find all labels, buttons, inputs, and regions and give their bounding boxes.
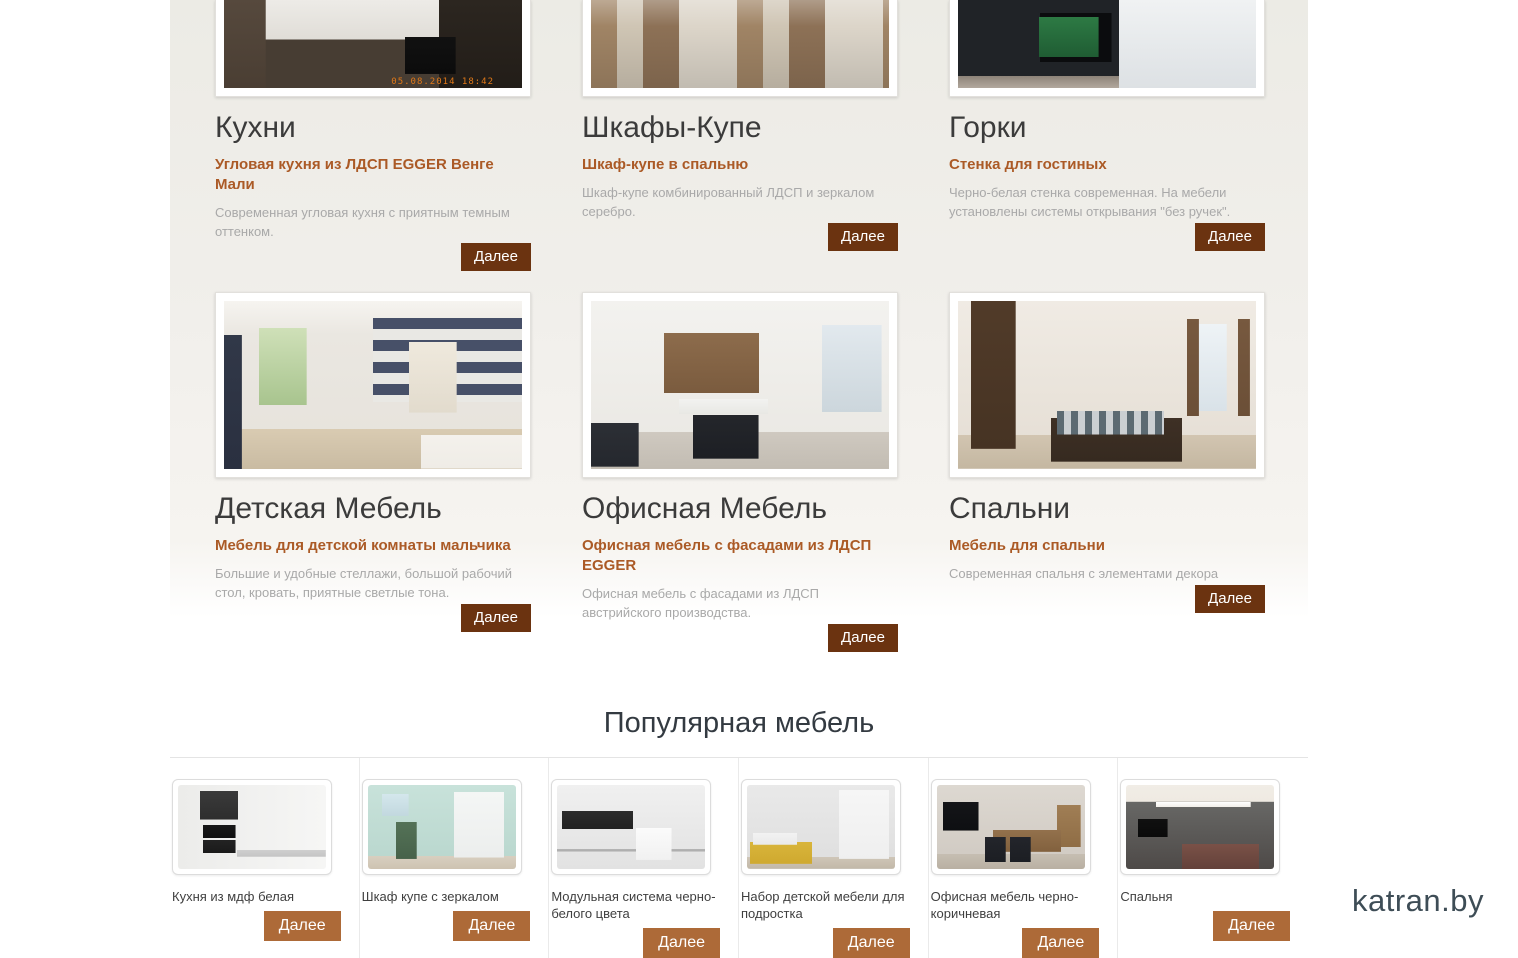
- bedroom-photo: [958, 301, 1256, 469]
- more-button[interactable]: Далее: [828, 223, 898, 251]
- more-button[interactable]: Далее: [828, 624, 898, 652]
- button-row: Далее: [949, 223, 1265, 251]
- category-card-kids-furniture: Детская Мебель Мебель для детской комнат…: [215, 292, 531, 652]
- category-title: Горки: [949, 110, 1265, 146]
- more-button[interactable]: Далее: [264, 911, 341, 941]
- site-logo: katran.by: [1352, 882, 1484, 920]
- popular-card-mirror-wardrobe: Шкаф купе с зеркалом Далее: [360, 758, 550, 958]
- kids-room-photo: [224, 301, 522, 469]
- more-button[interactable]: Далее: [461, 243, 531, 271]
- category-subtitle-link[interactable]: Шкаф-купе в спальню: [582, 155, 898, 175]
- category-description: Шкаф-купе комбинированный ЛДСП и зеркало…: [582, 183, 884, 221]
- popular-card-teen-furniture: Набор детской мебели для подростка Далее: [739, 758, 929, 958]
- popular-caption: Спальня: [1120, 888, 1292, 905]
- category-subtitle-link[interactable]: Мебель для спальни: [949, 536, 1265, 556]
- wardrobe-photo: [591, 0, 889, 88]
- popular-heading: Популярная мебель: [170, 706, 1308, 740]
- category-card-office-furniture: Офисная Мебель Офисная мебель с фасадами…: [582, 292, 898, 652]
- category-description: Офисная мебель с фасадами из ЛДСП австри…: [582, 584, 884, 622]
- popular-photo-office-dark[interactable]: [931, 779, 1091, 875]
- category-description: Современная угловая кухня с приятным тем…: [215, 203, 517, 241]
- more-button[interactable]: Далее: [643, 928, 720, 958]
- category-photo-wall-units[interactable]: [949, 0, 1265, 97]
- category-title: Офисная Мебель: [582, 491, 898, 527]
- category-photo-office[interactable]: [582, 292, 898, 478]
- bedroom-thumb: [1126, 785, 1274, 869]
- category-title: Шкафы-Купе: [582, 110, 898, 146]
- popular-caption: Кухня из мдф белая: [172, 888, 343, 905]
- category-description: Черно-белая стенка современная. На мебел…: [949, 183, 1251, 221]
- more-button[interactable]: Далее: [1213, 911, 1290, 941]
- popular-photo-teen-furniture[interactable]: [741, 779, 901, 875]
- popular-photo-bedroom[interactable]: [1120, 779, 1280, 875]
- button-row: Далее: [949, 585, 1265, 613]
- kitchen-photo: 05.08.2014 18:42: [224, 0, 522, 88]
- office-dark-thumb: [937, 785, 1085, 869]
- more-button[interactable]: Далее: [453, 911, 530, 941]
- category-card-wall-units: Горки Стенка для гостиных Черно-белая ст…: [949, 0, 1265, 246]
- button-row: Далее: [551, 928, 722, 958]
- category-photo-kitchens[interactable]: 05.08.2014 18:42: [215, 0, 531, 97]
- more-button[interactable]: Далее: [461, 604, 531, 632]
- mirror-wardrobe-thumb: [368, 785, 516, 869]
- category-subtitle-link[interactable]: Стенка для гостиных: [949, 155, 1265, 175]
- category-grid: 05.08.2014 18:42 Кухни Угловая кухня из …: [170, 0, 1308, 652]
- button-row: Далее: [362, 911, 533, 941]
- category-card-bedrooms: Спальни Мебель для спальни Современная с…: [949, 292, 1265, 652]
- more-button[interactable]: Далее: [1195, 585, 1265, 613]
- popular-card-modular-system: Модульная система черно-белого цвета Дал…: [549, 758, 739, 958]
- category-description: Большие и удобные стеллажи, большой рабо…: [215, 564, 517, 602]
- category-title: Спальни: [949, 491, 1265, 527]
- category-card-kitchens: 05.08.2014 18:42 Кухни Угловая кухня из …: [215, 0, 531, 246]
- popular-caption: Набор детской мебели для подростка: [741, 888, 912, 922]
- category-card-wardrobes: Шкафы-Купе Шкаф-купе в спальню Шкаф-купе…: [582, 0, 898, 246]
- main-content: 05.08.2014 18:42 Кухни Угловая кухня из …: [170, 0, 1308, 958]
- popular-caption: Офисная мебель черно-коричневая: [931, 888, 1102, 922]
- category-title: Кухни: [215, 110, 531, 146]
- teen-furniture-thumb: [747, 785, 895, 869]
- button-row: Далее: [582, 624, 898, 652]
- more-button[interactable]: Далее: [833, 928, 910, 958]
- photo-timestamp: 05.08.2014 18:42: [391, 77, 494, 87]
- button-row: Далее: [215, 604, 531, 632]
- button-row: Далее: [931, 928, 1102, 958]
- category-description: Современная спальня с элементами декора: [949, 564, 1251, 583]
- category-subtitle-link[interactable]: Мебель для детской комнаты мальчика: [215, 536, 531, 556]
- button-row: Далее: [741, 928, 912, 958]
- wall-unit-photo: [958, 0, 1256, 88]
- popular-card-office-dark: Офисная мебель черно-коричневая Далее: [929, 758, 1119, 958]
- popular-card-white-kitchen: Кухня из мдф белая Далее: [170, 758, 360, 958]
- popular-caption: Модульная система черно-белого цвета: [551, 888, 722, 922]
- category-subtitle-link[interactable]: Угловая кухня из ЛДСП EGGER Венге Мали: [215, 155, 531, 195]
- button-row: Далее: [215, 243, 531, 271]
- more-button[interactable]: Далее: [1022, 928, 1099, 958]
- popular-photo-modular-system[interactable]: [551, 779, 711, 875]
- modular-system-thumb: [557, 785, 705, 869]
- category-subtitle-link[interactable]: Офисная мебель с фасадами из ЛДСП EGGER: [582, 536, 898, 576]
- category-photo-wardrobes[interactable]: [582, 0, 898, 97]
- category-photo-bedrooms[interactable]: [949, 292, 1265, 478]
- category-title: Детская Мебель: [215, 491, 531, 527]
- category-photo-kids[interactable]: [215, 292, 531, 478]
- popular-photo-white-kitchen[interactable]: [172, 779, 332, 875]
- button-row: Далее: [582, 223, 898, 251]
- popular-caption: Шкаф купе с зеркалом: [362, 888, 533, 905]
- popular-card-bedroom: Спальня Далее: [1118, 758, 1308, 958]
- button-row: Далее: [172, 911, 343, 941]
- button-row: Далее: [1120, 911, 1292, 941]
- white-kitchen-thumb: [178, 785, 326, 869]
- popular-photo-mirror-wardrobe[interactable]: [362, 779, 522, 875]
- more-button[interactable]: Далее: [1195, 223, 1265, 251]
- popular-grid: Кухня из мдф белая Далее Шкаф купе с зер…: [170, 757, 1308, 958]
- office-photo: [591, 301, 889, 469]
